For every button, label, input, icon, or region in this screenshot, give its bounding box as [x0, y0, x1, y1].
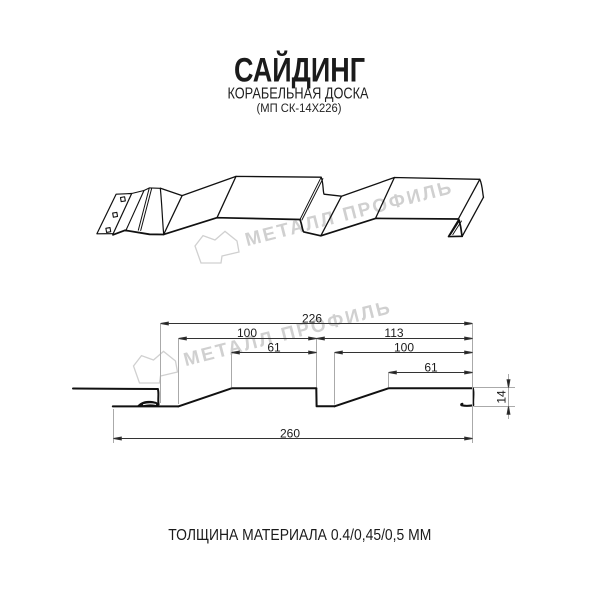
svg-text:61: 61	[424, 360, 438, 374]
svg-text:61: 61	[267, 340, 281, 354]
svg-text:САЙДИНГ: САЙДИНГ	[234, 49, 365, 89]
svg-text:100: 100	[394, 340, 414, 354]
svg-text:100: 100	[237, 326, 257, 340]
svg-text:226: 226	[302, 311, 322, 325]
svg-text:(МП СК-14Х226): (МП СК-14Х226)	[257, 101, 342, 115]
svg-text:КОРАБЕЛЬНАЯ ДОСКА: КОРАБЕЛЬНАЯ ДОСКА	[228, 86, 369, 103]
svg-text:260: 260	[280, 427, 300, 441]
svg-text:14: 14	[494, 390, 508, 404]
svg-text:113: 113	[384, 326, 403, 340]
svg-text:ТОЛЩИНА МАТЕРИАЛА 0.4/0,45/0,5: ТОЛЩИНА МАТЕРИАЛА 0.4/0,45/0,5 ММ	[168, 527, 431, 544]
